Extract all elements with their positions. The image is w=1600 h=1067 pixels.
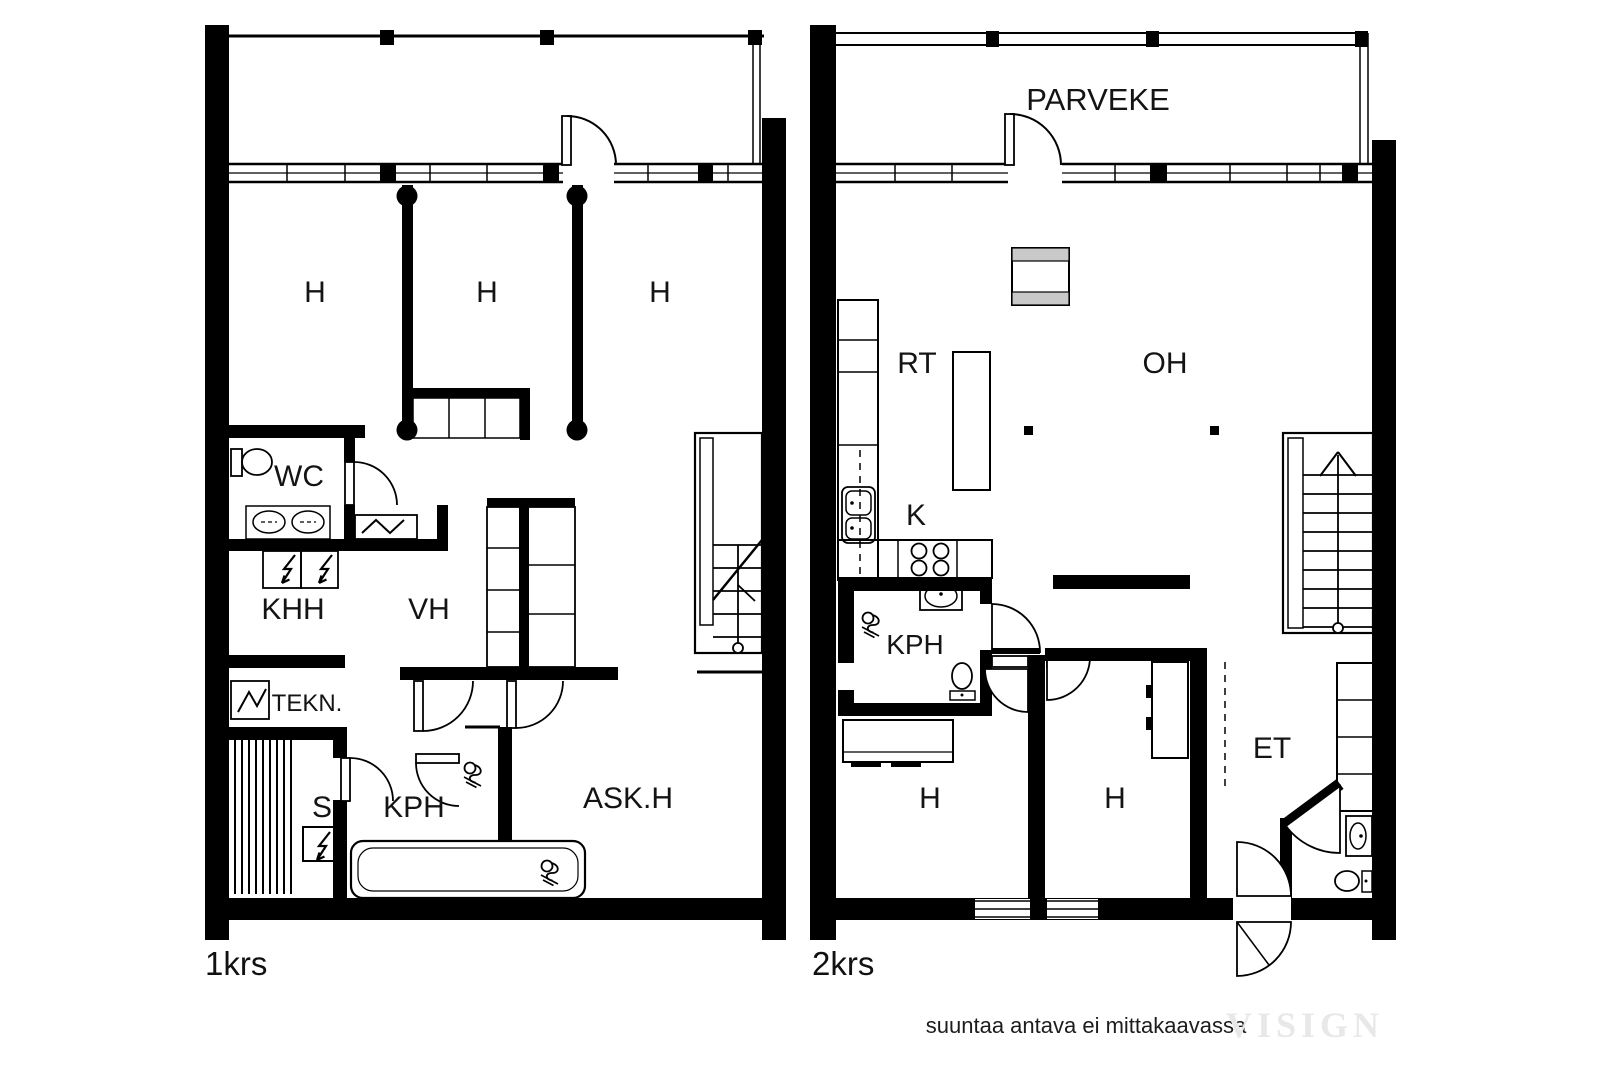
room-label-h3-1krs: H (649, 276, 671, 309)
room-label-khh: KHH (261, 593, 324, 626)
room-label-h1-1krs: H (304, 276, 326, 309)
room-label-tekn: TEKN. (272, 690, 343, 717)
room-label-kph-1krs: KPH (383, 791, 445, 824)
floor-plan-page: H H H WC KHH VH TEKN. S KPH ASK.H 1krs (0, 0, 1600, 1067)
disclaimer-text: suuntaa antava ei mittakaavassa (926, 1013, 1247, 1038)
stairs-1krs (695, 433, 762, 672)
watermark-logo: VISIGN (1226, 1005, 1384, 1045)
bathtub-icon (351, 841, 585, 898)
room-label-parveke: PARVEKE (1026, 82, 1170, 117)
room-label-vh: VH (408, 593, 450, 626)
room-label-h1-2krs: H (919, 782, 941, 815)
stairs-2krs (1283, 433, 1373, 633)
floor-plan-image: H H H WC KHH VH TEKN. S KPH ASK.H 1krs (0, 0, 1600, 1067)
floor-label-2krs: 2krs (812, 945, 874, 982)
room-label-rt: RT (897, 347, 936, 380)
column-dot (1024, 426, 1033, 435)
counter-zigzag-icon (355, 515, 417, 539)
room-label-h2-1krs: H (476, 276, 498, 309)
room-label-h2-2krs: H (1104, 782, 1126, 815)
room-label-s: S (312, 791, 332, 824)
room-label-kph-2krs: KPH (886, 629, 944, 660)
floor-label-1krs: 1krs (205, 945, 267, 982)
column-dot (1210, 426, 1219, 435)
room-label-oh: OH (1143, 347, 1188, 380)
room-label-k: K (906, 499, 926, 532)
room-label-wc: WC (274, 460, 324, 493)
room-label-askh: ASK.H (583, 782, 673, 815)
room-label-et: ET (1253, 732, 1291, 765)
low-wall-oh (1053, 575, 1190, 589)
